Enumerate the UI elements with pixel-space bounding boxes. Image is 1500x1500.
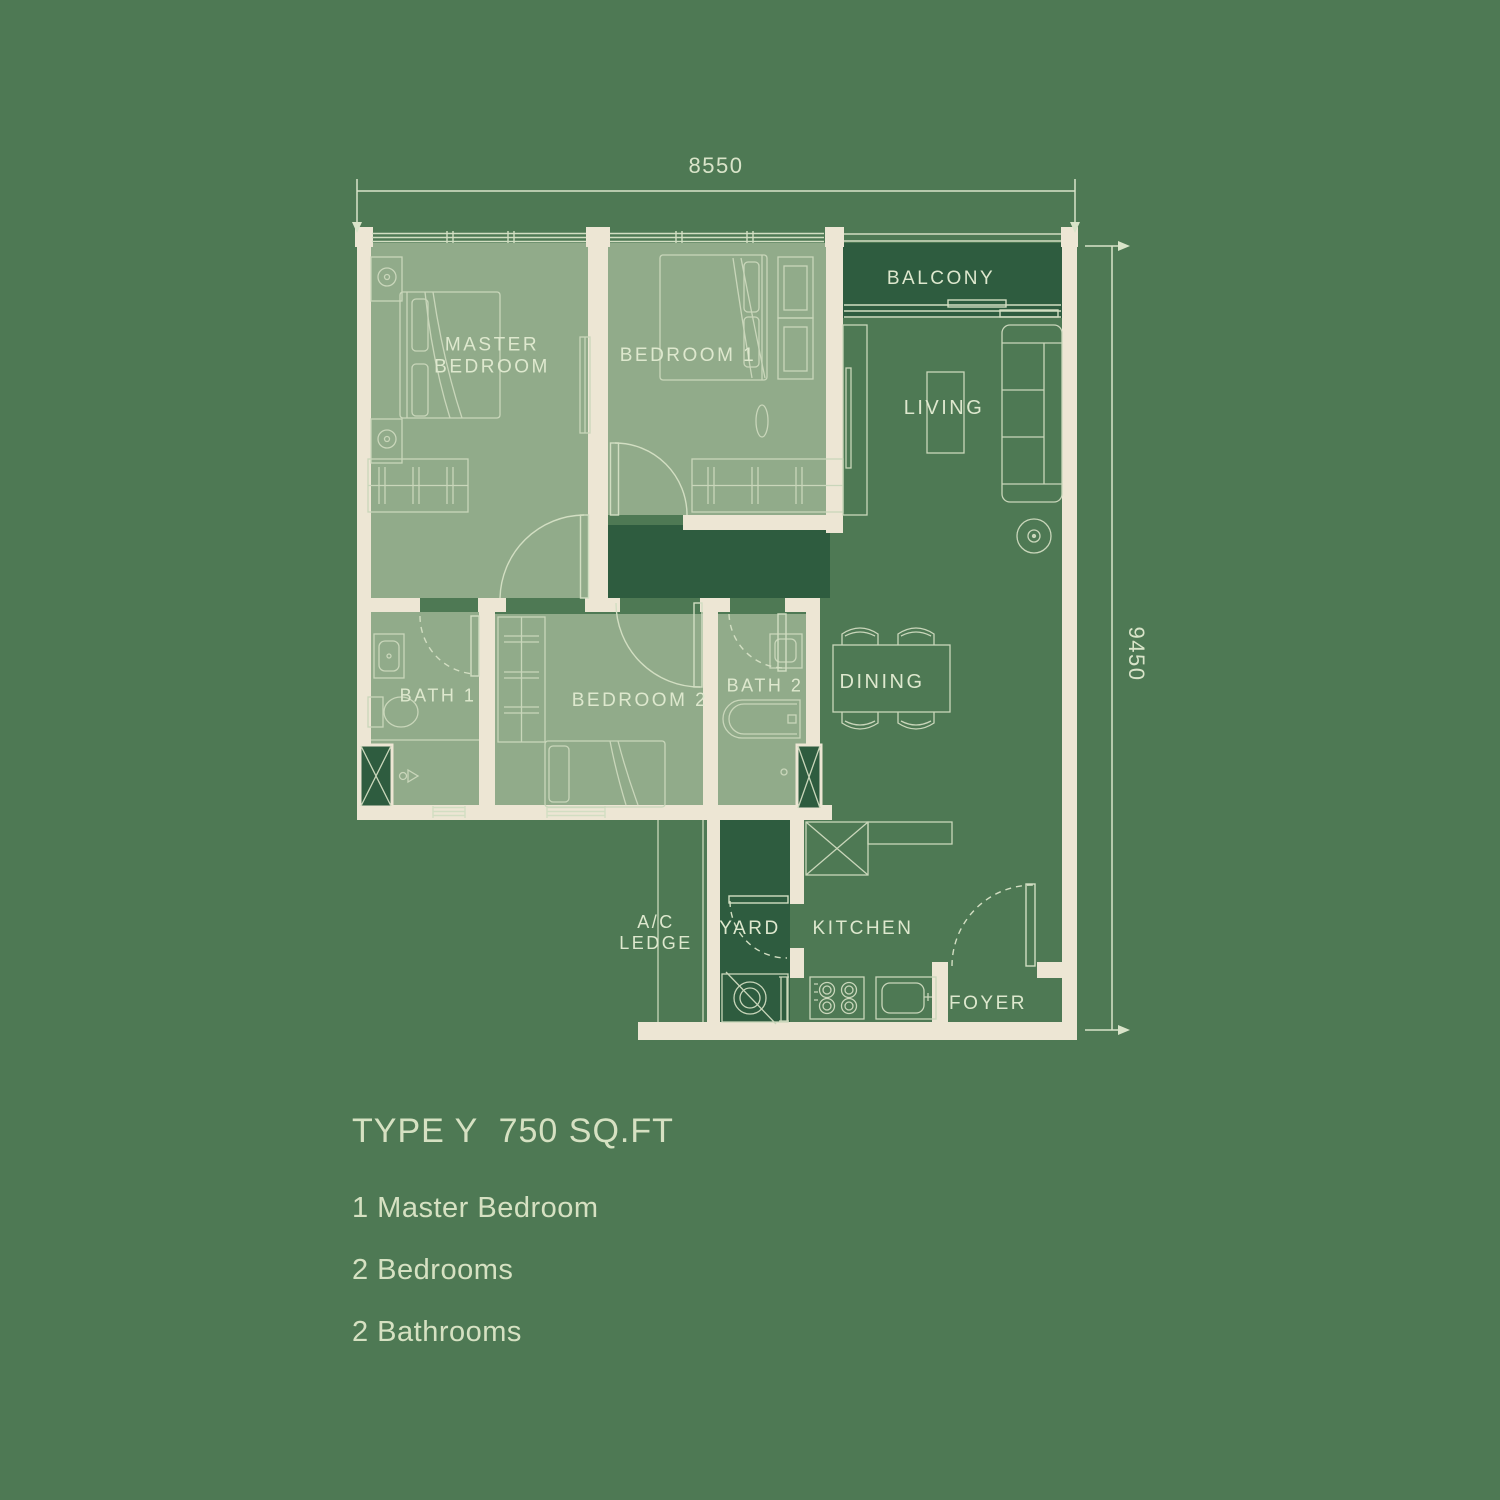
tv <box>846 368 851 468</box>
label-bedroom-1: BEDROOM 1 <box>620 345 757 367</box>
label-bath-2: BATH 2 <box>727 675 804 696</box>
entrance-door <box>1026 884 1035 966</box>
label-bath-1: BATH 1 <box>400 685 477 706</box>
label-foyer: FOYER <box>949 993 1027 1015</box>
dimension-height: 9450 <box>1123 627 1149 682</box>
feature-bedrooms: 2 Bedrooms <box>352 1254 513 1287</box>
sofa <box>1002 325 1062 502</box>
room-fill-master-bedroom <box>371 243 588 598</box>
stove <box>810 977 864 1019</box>
label-balcony: BALCONY <box>887 268 995 290</box>
label-dining: DINING <box>840 671 925 695</box>
unit-type-title: TYPE Y 750 SQ.FT <box>352 1112 674 1151</box>
kitchen-counter <box>868 822 952 844</box>
feature-bathrooms: 2 Bathrooms <box>352 1316 522 1349</box>
label-living: LIVING <box>904 397 985 421</box>
chair <box>898 712 934 729</box>
chair <box>842 712 878 729</box>
label-master-bedroom: MASTER BEDROOM <box>434 335 550 380</box>
living-furniture <box>843 325 1062 553</box>
corridor-block <box>608 525 830 598</box>
chair <box>842 628 878 645</box>
chair <box>898 628 934 645</box>
floorplan-drawing <box>0 0 1500 1500</box>
label-ac-ledge: A/C LEDGE <box>619 912 693 954</box>
label-kitchen: KITCHEN <box>813 918 914 940</box>
feature-master-bedroom: 1 Master Bedroom <box>352 1192 599 1225</box>
label-bedroom-2: BEDROOM 2 <box>572 690 709 712</box>
label-yard: YARD <box>719 918 780 940</box>
floorplan-canvas: MASTER BEDROOM BEDROOM 1 BALCONY LIVING … <box>0 0 1500 1500</box>
dimension-width: 8550 <box>689 153 744 179</box>
